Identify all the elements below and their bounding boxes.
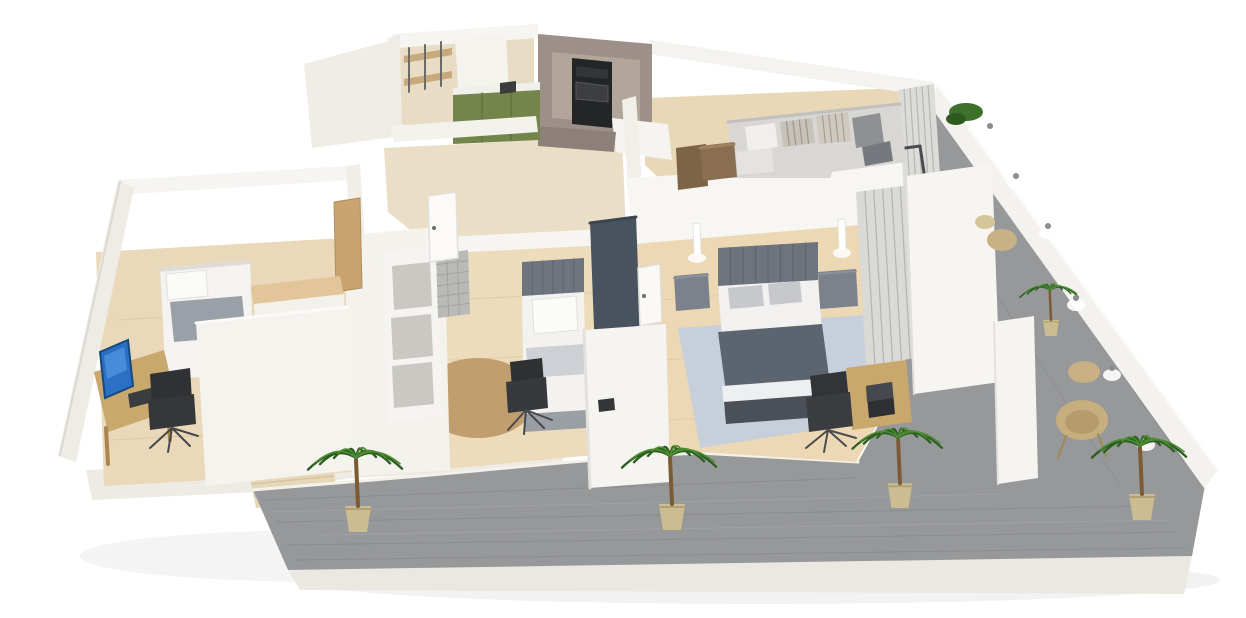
balcony-stool	[1068, 361, 1100, 383]
balcony-sconce-1	[981, 123, 999, 139]
back-wall-right	[648, 40, 934, 96]
master-door-handle	[642, 294, 646, 298]
balcony-wall-slab	[994, 316, 1038, 484]
master-wall-light-2-glow	[833, 248, 851, 258]
master-corner-wall	[906, 164, 1000, 394]
master-wall-light-1-glow	[688, 253, 706, 263]
sofa-pillow-striped-2	[816, 112, 851, 144]
master-pillow-right	[768, 281, 802, 305]
balcony-wicker-chair-inner	[1065, 410, 1099, 434]
sofa-pillow-gray	[852, 113, 884, 148]
balcony-sconce-2	[1007, 173, 1025, 189]
bed2-pillow	[532, 296, 578, 334]
utility-west-wall	[388, 34, 400, 136]
master-chair-seat	[806, 392, 853, 432]
balcony-sconce-3	[1039, 223, 1057, 239]
kitchen-oven	[576, 82, 608, 102]
sofa-pillow-striped-1	[780, 118, 815, 147]
closet-recess-2	[391, 314, 433, 360]
master-nightstand-right	[818, 269, 858, 309]
office-desk-leg-1	[106, 428, 108, 464]
balcony-chair-upper	[987, 229, 1017, 251]
office-chair-seat	[148, 394, 196, 430]
wall-top-planter-2	[946, 113, 966, 125]
master-door	[638, 264, 662, 326]
slab-laptop-object	[598, 398, 615, 412]
floorplan-stage: 3D apartment floor plan render	[0, 0, 1246, 618]
master-nightstand-left	[674, 273, 710, 311]
closet-recess-3	[392, 362, 434, 408]
left-wing-north-wall	[118, 166, 352, 194]
bedroom2-chair-seat	[506, 377, 548, 413]
master-wall-light-2	[838, 219, 846, 250]
upper-left-wall	[304, 38, 402, 148]
master-pillow-left	[728, 285, 764, 309]
floorplan-canvas	[0, 0, 1246, 618]
kitchen-faucet	[500, 81, 516, 94]
balcony-table-upper	[975, 215, 995, 229]
closet-recess-1	[392, 262, 432, 310]
hallway-door-handle	[432, 226, 436, 230]
bed1-pillow	[166, 270, 208, 300]
master-wall-light-1	[693, 223, 701, 255]
sofa-pillow-white	[745, 123, 778, 151]
sofa-seat-cushion	[736, 148, 774, 175]
bed1-front-mass	[196, 306, 354, 486]
